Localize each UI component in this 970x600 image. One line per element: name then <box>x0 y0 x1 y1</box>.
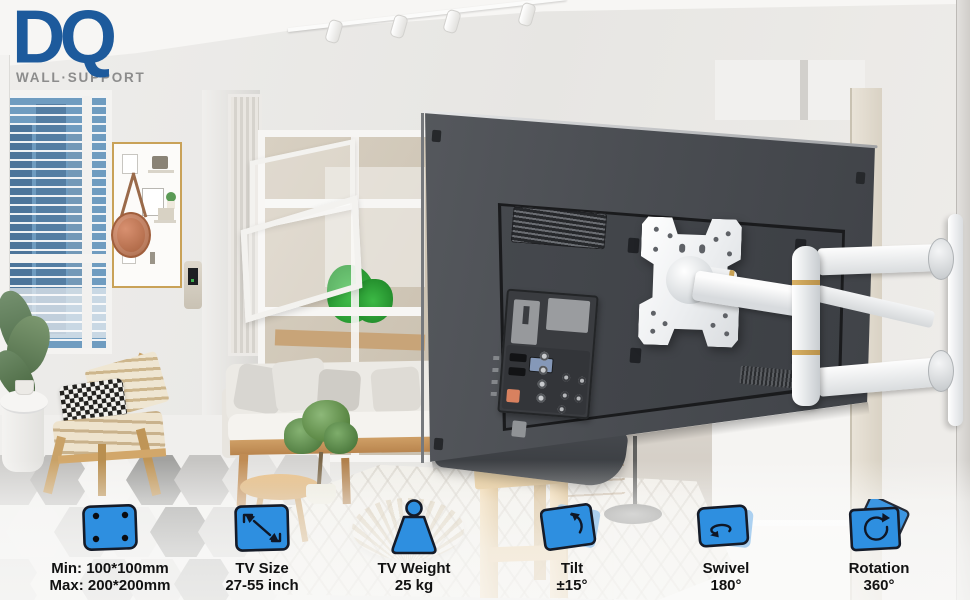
vesa-hole <box>650 329 655 334</box>
brand-name: DQ <box>12 1 146 73</box>
vesa-hole <box>668 233 673 238</box>
potted-plant <box>284 400 360 504</box>
vesa-hole <box>653 247 658 252</box>
vesa-hole <box>651 311 656 316</box>
ledge-button <box>511 420 527 437</box>
doorway-edge <box>800 60 808 120</box>
hanging-bag <box>111 212 151 258</box>
spec-line1: Tilt <box>561 560 583 577</box>
hook-key <box>150 252 155 264</box>
spec-tv-weight: TV Weight 25 kg <box>344 496 484 594</box>
vesa-keyhole <box>699 244 705 253</box>
tv-left-edge-highlight <box>421 113 424 463</box>
tv-port-panel <box>497 289 598 420</box>
window-sill <box>0 254 106 263</box>
doorway-top <box>715 60 865 120</box>
spec-line1: Rotation <box>849 560 910 577</box>
port-sticker <box>511 299 540 345</box>
screw-slot <box>629 348 641 364</box>
vesa-hole <box>710 323 715 328</box>
vesa-hole <box>713 237 718 242</box>
tilt-icon <box>540 496 604 560</box>
hdmi-port <box>508 367 526 376</box>
spec-line2: 360° <box>863 577 894 594</box>
chair-leg <box>98 444 106 496</box>
vesa-hole <box>727 251 732 256</box>
gold-ring <box>792 280 820 285</box>
rotation-icon <box>846 496 912 560</box>
tv-weight-icon <box>386 496 442 560</box>
tv-vent-grille <box>511 206 608 249</box>
gold-ring <box>792 350 820 355</box>
vesa-hole <box>723 313 728 318</box>
sticker-slot <box>522 306 529 324</box>
picture-frame <box>122 154 138 174</box>
spec-line1: Swivel <box>703 560 750 577</box>
mount-post <box>792 246 820 406</box>
spec-line2: ±15° <box>557 577 588 594</box>
vesa-hole <box>662 321 667 326</box>
port-sticker <box>546 298 590 333</box>
spec-line1: Min: 100*100mm <box>51 560 169 577</box>
sofa-pillow <box>370 366 422 414</box>
lounge-chair <box>38 352 168 502</box>
screw-mark <box>432 130 442 143</box>
vesa-pattern-icon <box>81 496 139 560</box>
shelf <box>154 220 176 223</box>
window-mullion <box>82 96 92 348</box>
vesa-hole <box>654 227 659 232</box>
power-button-orange <box>506 389 520 403</box>
screw-mark <box>434 438 444 451</box>
hdmi-port <box>509 353 527 362</box>
shelf <box>148 170 174 173</box>
screw-mark <box>856 172 866 185</box>
spec-line1: TV Size <box>235 560 288 577</box>
product-image: DQ WALL·SUPPORT Min: 100*100mm Max: 200*… <box>0 0 970 600</box>
chair-leg <box>43 436 66 494</box>
hinge-cap <box>928 238 954 280</box>
spec-tilt: Tilt ±15° <box>502 496 642 594</box>
spec-rotation: Rotation 360° <box>809 496 949 594</box>
spec-line2: 180° <box>710 577 741 594</box>
vesa-hole <box>726 231 731 236</box>
spec-line2: 27-55 inch <box>225 577 298 594</box>
shelf-item <box>152 156 168 169</box>
spec-tv-size: TV Size 27-55 inch <box>192 496 332 594</box>
lock-led <box>191 279 194 282</box>
tv-size-icon <box>233 496 291 560</box>
plant-trunk <box>317 452 323 486</box>
vesa-hole <box>724 331 729 336</box>
spec-line2: 25 kg <box>395 577 433 594</box>
swivel-icon <box>695 496 757 560</box>
screw-slot <box>627 238 639 254</box>
spec-line1: TV Weight <box>377 560 450 577</box>
spec-swivel: Swivel 180° <box>656 496 796 594</box>
lock-screen <box>188 268 198 285</box>
door-lock <box>184 261 202 309</box>
vesa-keyhole <box>679 244 685 253</box>
cup <box>15 380 34 395</box>
spec-line2: Max: 200*200mm <box>50 577 171 594</box>
hinge-cap <box>928 350 954 392</box>
brand-logo: DQ WALL·SUPPORT <box>12 2 146 85</box>
books <box>158 208 174 220</box>
plant-foliage <box>324 422 358 454</box>
spec-vesa: Min: 100*100mm Max: 200*200mm <box>40 496 180 594</box>
